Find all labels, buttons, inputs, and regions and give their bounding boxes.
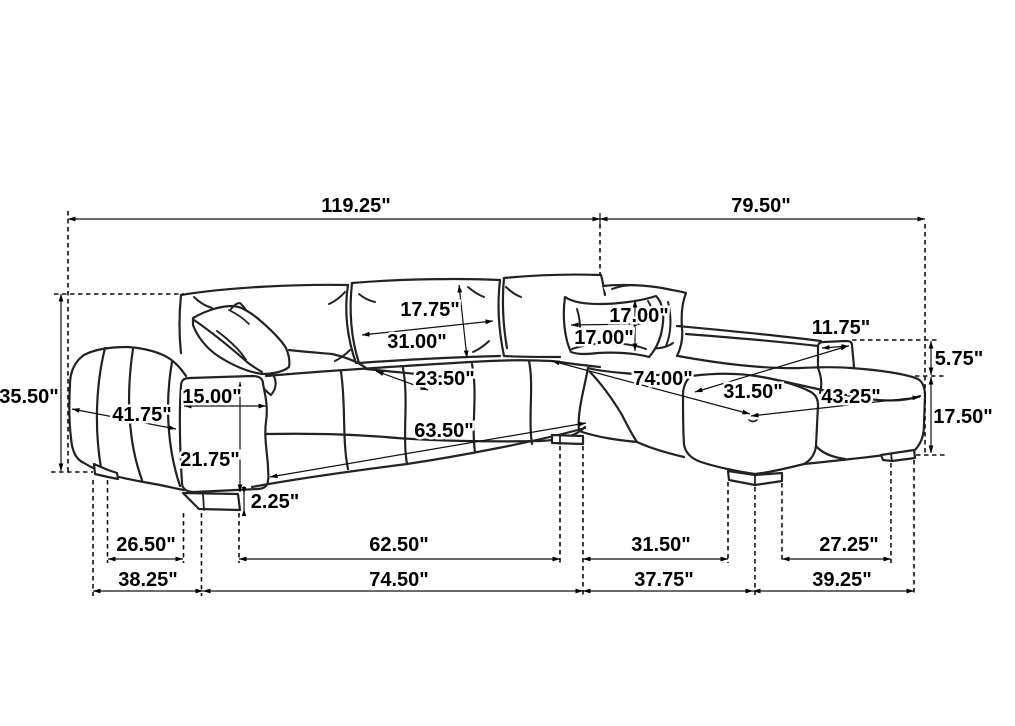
svg-text:23.50": 23.50": [415, 368, 475, 390]
svg-text:31.50": 31.50": [723, 381, 783, 403]
svg-text:74.50": 74.50": [369, 569, 429, 591]
svg-text:17.75": 17.75": [400, 299, 460, 321]
svg-text:17.50": 17.50": [933, 406, 993, 428]
svg-text:74.00": 74.00": [633, 368, 693, 390]
svg-text:11.75": 11.75": [812, 317, 870, 339]
svg-text:62.50": 62.50": [369, 534, 429, 556]
svg-text:27.25": 27.25": [819, 534, 879, 556]
svg-text:5.75": 5.75": [935, 348, 983, 370]
svg-text:35.50": 35.50": [0, 386, 59, 408]
svg-text:63.50": 63.50": [414, 420, 474, 442]
svg-text:31.00": 31.00": [387, 331, 447, 353]
svg-text:41.75": 41.75": [112, 404, 172, 426]
svg-text:119.25": 119.25": [321, 195, 391, 217]
svg-text:37.75": 37.75": [634, 569, 694, 591]
svg-text:43.25": 43.25": [821, 386, 881, 408]
svg-text:17.00": 17.00": [574, 327, 634, 349]
svg-text:2.25": 2.25": [251, 491, 299, 513]
svg-text:15.00": 15.00": [182, 386, 242, 408]
svg-text:21.75": 21.75": [180, 449, 240, 471]
svg-text:38.25": 38.25": [118, 569, 178, 591]
svg-text:17.00": 17.00": [609, 305, 669, 327]
svg-text:31.50": 31.50": [631, 534, 691, 556]
svg-text:26.50": 26.50": [116, 534, 176, 556]
svg-text:79.50": 79.50": [731, 195, 791, 217]
svg-text:39.25": 39.25": [812, 569, 872, 591]
